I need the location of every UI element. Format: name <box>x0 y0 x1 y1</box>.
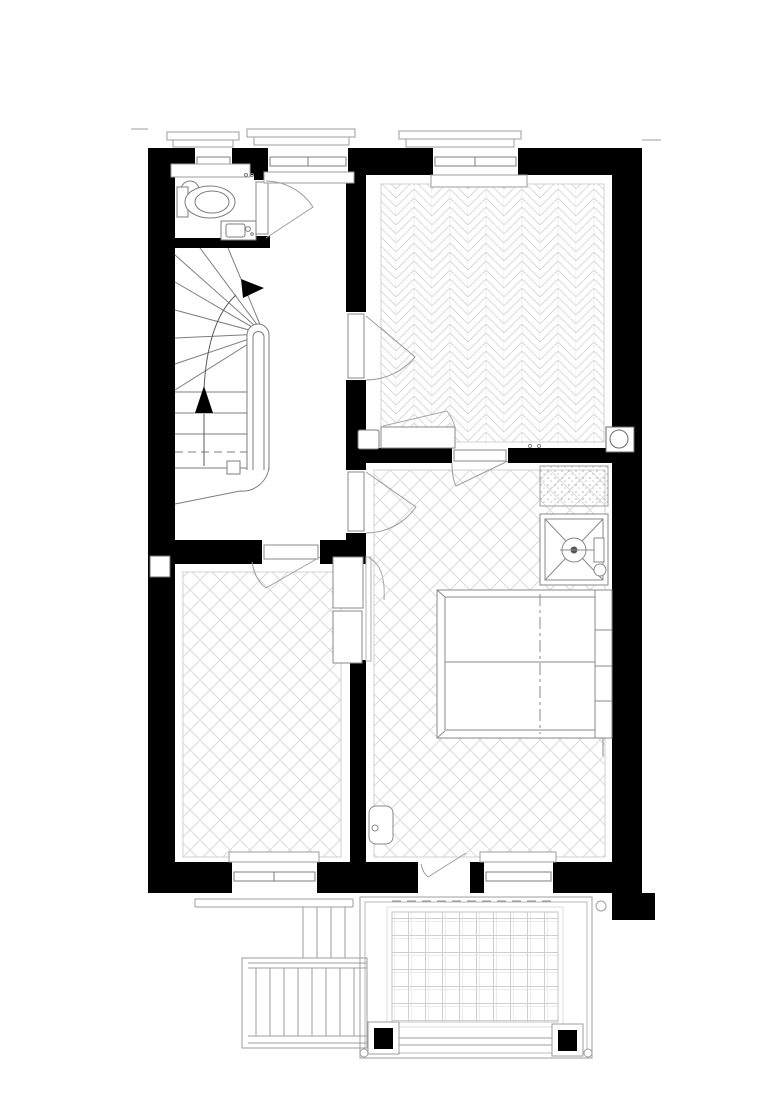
radiator-cabinet <box>381 427 455 448</box>
terrace <box>360 897 606 1058</box>
floor-herringbone-room <box>381 184 604 442</box>
flight-treads <box>175 392 250 468</box>
floor-socket-dot-2 <box>537 444 540 447</box>
bottomleft-interior-sill <box>229 852 319 862</box>
corner-niche <box>358 430 379 449</box>
flue-duct-icon <box>610 430 628 448</box>
wall-left <box>148 148 175 893</box>
floor-socket-dot-1 <box>528 444 531 447</box>
staircase <box>175 248 269 504</box>
exterior-stairs <box>242 907 367 1048</box>
wc-interior-sill <box>171 164 250 177</box>
bed-headboard <box>595 590 612 738</box>
railing-corner-left-icon <box>360 1049 368 1057</box>
window-sill-top-2 <box>247 129 355 137</box>
handrail-outer <box>247 324 269 470</box>
stair-walk-line <box>204 295 236 466</box>
thin-partition <box>366 557 371 661</box>
newel-post <box>227 461 240 474</box>
wall-niche-left <box>150 556 170 577</box>
window-terrace-frame <box>486 872 551 881</box>
terrace-bottom-rails <box>374 1038 580 1045</box>
wall-pier-bottom-right <box>612 893 655 920</box>
stair-turn-arrow-icon <box>241 279 264 298</box>
ext-stair-lower-treads <box>256 968 354 1036</box>
wardrobe-cabinet-upper <box>333 557 363 608</box>
window-sill-top-2-inner <box>254 137 349 145</box>
wall-mullion-terrace <box>470 862 484 893</box>
stipple-mat <box>540 466 608 506</box>
terrace-window-interior-sill <box>480 852 556 862</box>
bottomleft-door-leaf <box>264 545 318 559</box>
wall-right <box>612 148 642 893</box>
side-cabinet <box>369 806 393 844</box>
ext-stair-lower-outline <box>242 958 367 1048</box>
floor-bottom-left-lattice <box>183 572 341 857</box>
floor-plan-canvas <box>0 0 780 1103</box>
window-sill-top-1-inner <box>173 140 233 147</box>
bedroom-door-leaf <box>348 472 364 531</box>
stair-bottom-turn <box>175 467 269 504</box>
terrace-tile-floor <box>392 912 558 1022</box>
hall-interior-sill <box>264 172 354 183</box>
stair-up-arrow-icon <box>195 386 213 413</box>
wc-door-leaf <box>256 182 268 234</box>
ext-stair-upper-treads <box>303 907 345 958</box>
wall-bottomleft-bedroom <box>350 660 366 862</box>
topright-interior-sill <box>431 175 527 187</box>
window-sill-top-3 <box>399 131 521 139</box>
connecting-door-leaf <box>454 450 506 461</box>
topright-door-leaf <box>348 314 364 378</box>
wardrobe-cabinet-lower <box>333 611 362 663</box>
bed-frame <box>437 590 612 738</box>
window-sill-top-3-inner <box>406 139 514 147</box>
wc-fixtures <box>177 174 256 241</box>
wall-bottom <box>148 862 642 893</box>
ext-stair-stringers <box>248 963 367 1043</box>
shower-panel <box>594 538 604 562</box>
window-sill-bottom <box>195 899 353 907</box>
railing-corner-right-icon <box>584 1049 592 1057</box>
railing-post-right <box>558 1030 577 1051</box>
wc-door-swing <box>266 181 313 238</box>
window-sill-top-1 <box>167 132 239 140</box>
shower-head-icon <box>594 564 606 576</box>
downspout-icon <box>596 901 606 911</box>
railing-post-left <box>374 1028 393 1049</box>
